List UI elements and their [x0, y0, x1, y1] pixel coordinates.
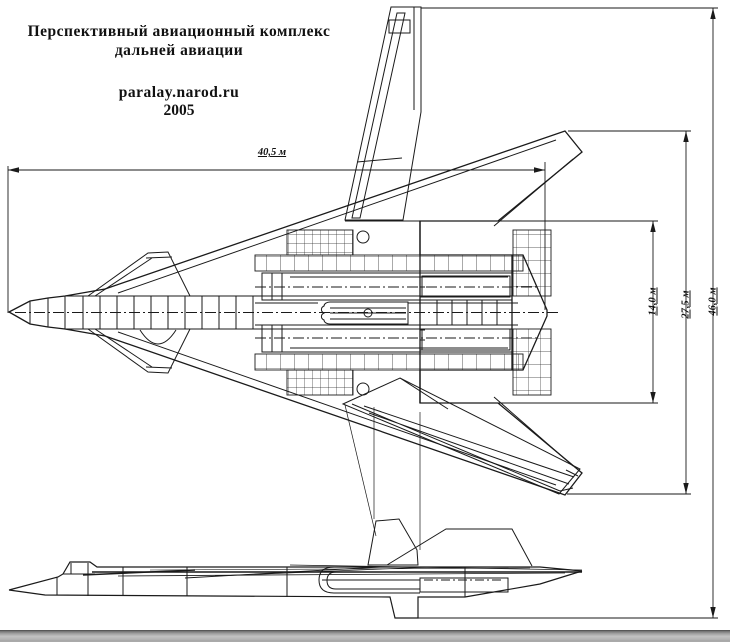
title-line-1: Перспективный авиационный комплекс: [0, 22, 358, 41]
access-port-lower: [357, 383, 369, 395]
dimension-label-full-span: 46,0 м: [708, 277, 719, 327]
title-line-2: дальней авиации: [0, 41, 358, 60]
side-outline: [9, 562, 582, 618]
title-block: Перспективный авиационный комплекс дальн…: [0, 22, 358, 120]
site-url: paralay.narod.ru: [0, 84, 358, 102]
dimension-label-inner-span: 14,0 м: [648, 277, 659, 327]
dimension-label-length: 40,5 м: [237, 147, 307, 158]
horizontal-scrollbar[interactable]: [0, 630, 730, 642]
dimension-label-wing-span: 27,5 м: [681, 280, 692, 330]
side-view-drawing: [9, 519, 582, 618]
planform-outline: [9, 131, 582, 495]
weapons-bay: [321, 302, 408, 324]
side-fins: [368, 519, 532, 566]
drawing-page: Перспективный авиационный комплекс дальн…: [0, 0, 730, 642]
access-port-upper: [357, 231, 369, 243]
title-year: 2005: [0, 102, 358, 120]
